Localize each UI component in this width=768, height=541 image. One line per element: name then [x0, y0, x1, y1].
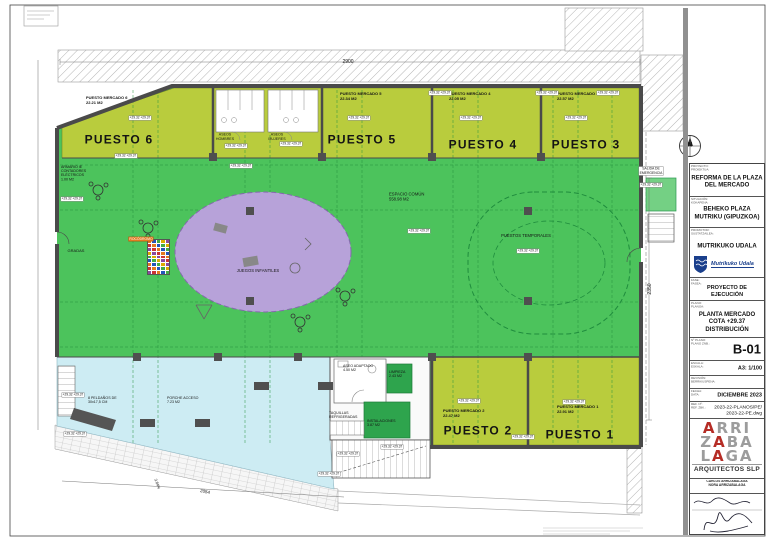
- field-promotor: PROMOTOR:SUSTATZAILEA: MUTRIKUKO UDALA M…: [690, 228, 764, 278]
- disclaimer-lines: [543, 528, 643, 534]
- promoter-logo-text: Mutrikuko Udala: [711, 261, 754, 268]
- climbing-hold: [161, 248, 164, 251]
- field-proyecto: PROYECTO:PROIEKTUA: REFORMA DE LA PLAZA …: [690, 164, 764, 197]
- field-key: PLANO:PLANOA:: [691, 302, 764, 309]
- playground-area: [175, 192, 351, 312]
- climbing-hold: [157, 240, 160, 243]
- climbing-hold: [166, 240, 169, 243]
- climbing-hold: [157, 248, 160, 251]
- climbing-hold: [157, 252, 160, 255]
- title-block: PROYECTO:PROIEKTUA: REFORMA DE LA PLAZA …: [689, 163, 765, 535]
- mutriku-shield-icon: [693, 255, 709, 274]
- climbing-hold: [152, 252, 155, 255]
- walkway-edge-lines: [338, 491, 640, 515]
- titleblock-separator-bar: [683, 8, 688, 535]
- scale-value: A3: 1/100: [738, 366, 762, 373]
- firm-logo-rows: ARRIZABALAGA: [690, 421, 764, 463]
- climbing-hold: [148, 248, 151, 251]
- phase: PROYECTO DE EJECUCIÓN: [691, 285, 763, 299]
- climbing-hold: [166, 259, 169, 262]
- architect-name: NORA ARRIZABALAGA: [690, 484, 764, 488]
- promoter-name: MUTRIKUKO UDALA: [691, 243, 763, 251]
- climbing-hold: [152, 256, 155, 259]
- climbing-hold: [152, 259, 155, 262]
- climbing-hold: [148, 271, 151, 274]
- climbing-hold: [157, 259, 160, 262]
- climbing-hold: [161, 267, 164, 270]
- neighbour-wall-bottomright: [627, 447, 642, 513]
- climbing-hold: [166, 248, 169, 251]
- climbing-hold: [157, 244, 160, 247]
- mini-legend-box: [24, 6, 58, 26]
- climbing-hold: [148, 240, 151, 243]
- climbing-hold: [161, 240, 164, 243]
- field-plano: PLANO:PLANOA: PLANTA MERCADO COTA +29.37…: [690, 301, 764, 338]
- climbing-hold: [148, 244, 151, 247]
- climbing-hold: [161, 252, 164, 255]
- floor-plan-drawing: [0, 0, 768, 541]
- climbing-hold: [157, 263, 160, 266]
- sheet-name: PLANTA MERCADO COTA +29.37 DISTRIBUCIÓN: [691, 311, 763, 334]
- field-fecha: FECHA:DATA: DICIEMBRE 2023: [690, 389, 764, 402]
- field-referencia: REF. Nº:REF. ZBK.: 2023-22-PLANOS/PE/ 20…: [690, 402, 764, 419]
- compass: [680, 136, 701, 157]
- sheet-number: B-01: [733, 342, 761, 357]
- field-key: SITUACIÓN:KOKAPENA:: [691, 198, 764, 205]
- climbing-hold: [152, 271, 155, 274]
- climbing-hold: [166, 267, 169, 270]
- field-revision: REVISIÓN:BERRIKUSPENA:: [690, 376, 764, 389]
- climbing-hold: [148, 256, 151, 259]
- climbing-holds-grid: [147, 239, 170, 275]
- climbing-hold: [148, 267, 151, 270]
- field-key: REVISIÓN:BERRIKUSPENA:: [691, 377, 764, 384]
- firm-logo-row: LAGA: [690, 449, 764, 463]
- climbing-hold: [157, 271, 160, 274]
- climbing-hold: [152, 240, 155, 243]
- climbing-hold: [152, 248, 155, 251]
- climbing-hold: [152, 244, 155, 247]
- utility-block: [330, 357, 430, 440]
- neighbour-building-top: [58, 50, 640, 82]
- firm-logo: ARRIZABALAGA ARQUITECTOS SLP: [690, 419, 764, 479]
- main-stairs: [332, 440, 430, 478]
- field-num-plano: Nº PLANO:PLANO ZNB.: B-01: [690, 338, 764, 361]
- climbing-hold: [166, 252, 169, 255]
- field-situacion: SITUACIÓN:KOKAPENA: BEHEKO PLAZA MUTRIKU…: [690, 197, 764, 228]
- climbing-hold: [148, 263, 151, 266]
- climbing-hold: [148, 252, 151, 255]
- climbing-hold: [166, 256, 169, 259]
- climbing-hold: [161, 263, 164, 266]
- date-value: DICIEMBRE 2023: [717, 393, 762, 400]
- site-location: BEHEKO PLAZA MUTRIKU (GIPUZKOA): [691, 207, 763, 222]
- project-title: REFORMA DE LA PLAZA DEL MERCADO: [691, 175, 763, 190]
- reference-value: 2023-22-PLANOS/PE/ 2023-22-PE.dwg: [714, 406, 762, 418]
- climbing-hold: [152, 267, 155, 270]
- stall-band-top: [62, 88, 639, 158]
- field-key: PROMOTOR:SUSTATZAILEA:: [691, 229, 764, 236]
- neighbour-building-right: [641, 55, 683, 131]
- drawing-sheet: PUESTO 6PUESTO 5PUESTO 4PUESTO 3PUESTO 2…: [0, 0, 768, 541]
- emergency-exit-stair: [646, 178, 676, 242]
- field-escala: ESCALA:ESKALA: A3: 1/100: [690, 361, 764, 376]
- climbing-hold: [157, 267, 160, 270]
- climbing-hold: [161, 271, 164, 274]
- climbing-hold: [161, 256, 164, 259]
- architect-names: CARLOS ARRIZABALAGANORA ARRIZABALAGA: [690, 479, 764, 494]
- climbing-hold: [148, 259, 151, 262]
- stall-band-bottom: [432, 357, 639, 445]
- promoter-logo: Mutrikuko Udala: [693, 255, 763, 274]
- climbing-hold: [161, 259, 164, 262]
- signatures: [690, 494, 764, 535]
- climbing-hold: [152, 263, 155, 266]
- signature-area: [690, 494, 764, 535]
- firm-subtitle: ARQUITECTOS SLP: [692, 464, 762, 473]
- field-fase: FASE:FASEA: PROYECTO DE EJECUCIÓN: [690, 278, 764, 301]
- field-key: PROYECTO:PROIEKTUA:: [691, 165, 764, 172]
- climbing-hold: [166, 244, 169, 247]
- climbing-hold: [161, 244, 164, 247]
- climbing-hold: [157, 256, 160, 259]
- neighbour-building-topright: [565, 8, 643, 51]
- climbing-hold: [166, 271, 169, 274]
- climbing-hold: [166, 263, 169, 266]
